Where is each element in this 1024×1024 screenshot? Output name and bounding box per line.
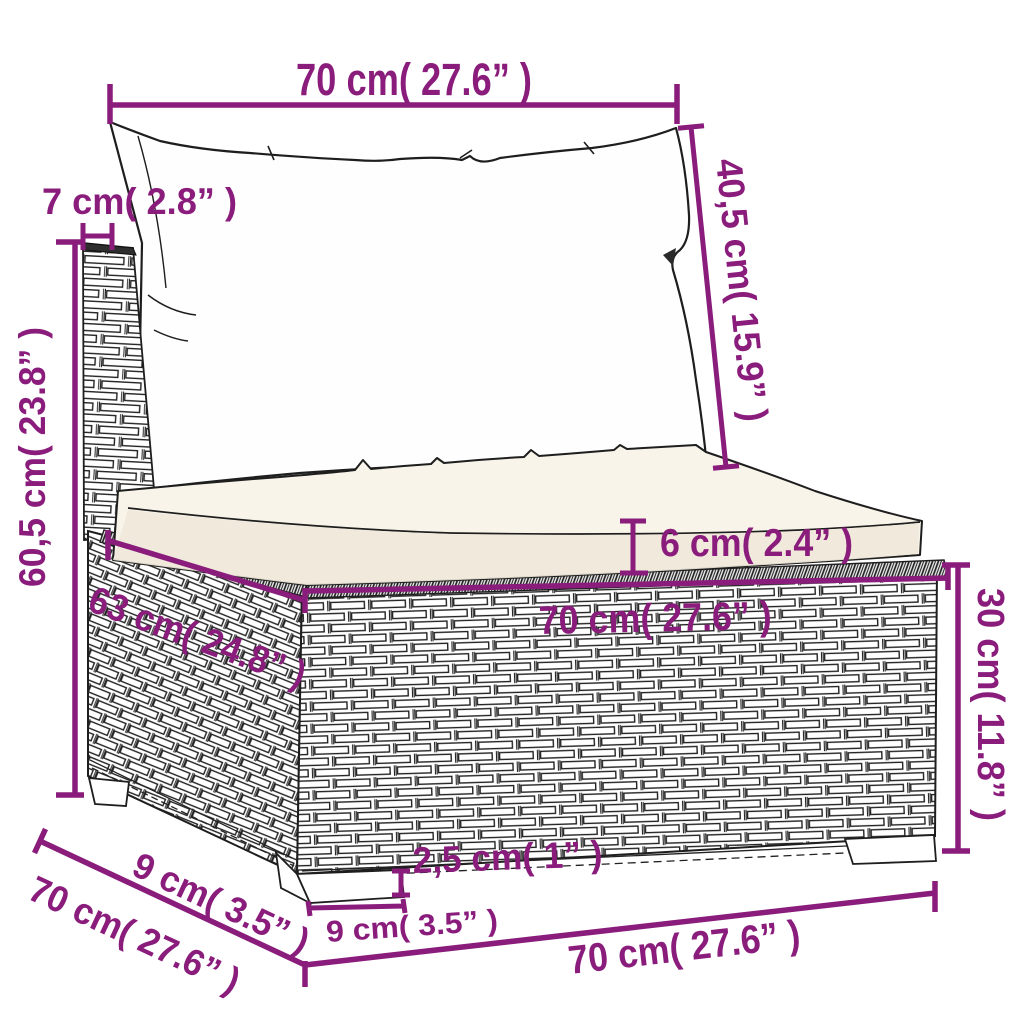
svg-text:70 cm( 27.6” ): 70 cm( 27.6” ) xyxy=(296,54,532,105)
svg-text:2,5 cm( 1” ): 2,5 cm( 1” ) xyxy=(412,833,603,881)
svg-text:70 cm( 27.6” ): 70 cm( 27.6” ) xyxy=(538,594,772,643)
svg-text:6 cm( 2.4” ): 6 cm( 2.4” ) xyxy=(660,522,853,565)
svg-text:60,5 cm( 23.8” ): 60,5 cm( 23.8” ) xyxy=(12,327,53,587)
svg-text:7 cm( 2.8” ): 7 cm( 2.8” ) xyxy=(42,181,237,222)
svg-text:30 cm( 11.8” ): 30 cm( 11.8” ) xyxy=(969,588,1011,821)
